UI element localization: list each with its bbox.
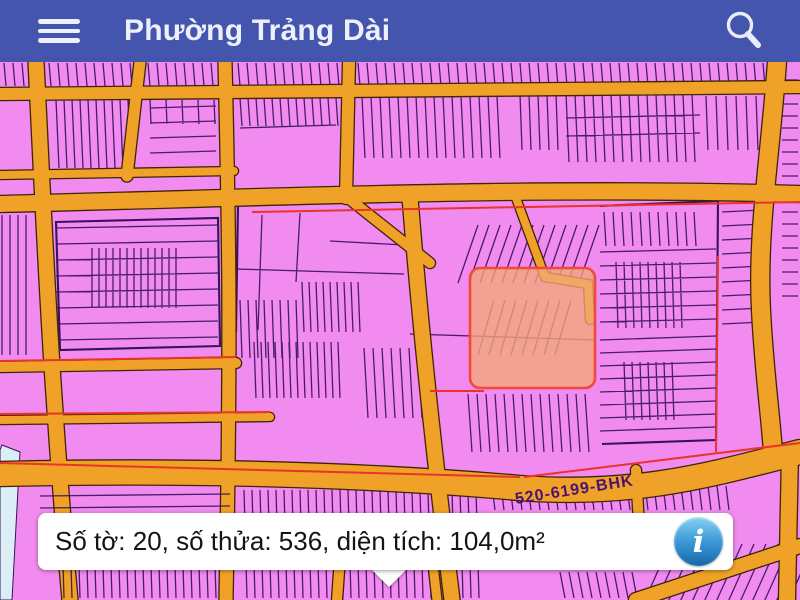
selected-parcel-highlight[interactable] <box>470 268 595 388</box>
map-canvas[interactable]: 520-6199-BHK Số tờ: 20, số thửa: 536, di… <box>0 62 800 600</box>
parcel-info-bar: Số tờ: 20, số thửa: 536, diện tích: 104,… <box>38 513 733 570</box>
hamburger-menu-icon <box>38 19 80 24</box>
page-title: Phường Trảng Dài <box>124 14 390 48</box>
info-button[interactable]: i <box>674 517 723 566</box>
parcel-info-text: Số tờ: 20, số thửa: 536, diện tích: 104,… <box>55 526 545 557</box>
app-header: Phường Trảng Dài <box>0 0 800 62</box>
search-icon <box>716 6 768 56</box>
app-window: Phường Trảng Dài 520-6199-BHK Số tờ: 20,… <box>0 0 800 600</box>
search-button[interactable] <box>716 6 768 56</box>
info-bar-tail <box>370 568 408 587</box>
info-icon: i <box>693 524 705 560</box>
hamburger-menu-button[interactable] <box>38 17 82 45</box>
